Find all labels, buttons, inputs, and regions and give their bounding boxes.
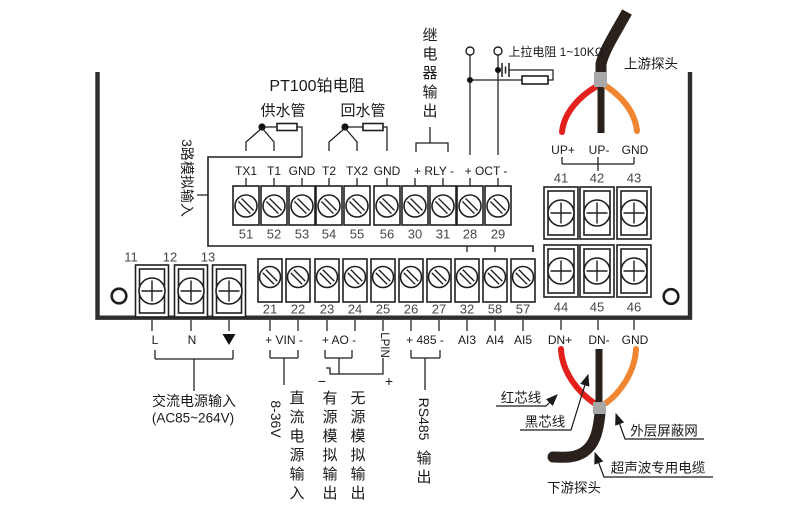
neutral-label: N [188, 334, 197, 346]
pt100-title: PT100铂电阻 [269, 79, 364, 95]
terminal-label-t1: T1 [267, 165, 281, 177]
terminal-number: 24 [348, 302, 362, 317]
active-output-caption: 有源模拟输出 [322, 389, 337, 503]
supply-pipe-label: 供水管 [260, 104, 305, 119]
terminal-number: 56 [380, 227, 394, 242]
rs485-terminal-label: + 485 - [406, 334, 444, 346]
up-bracket [562, 157, 634, 171]
black-core-label: 黑芯线 [525, 415, 566, 429]
up-gnd-label: GND [622, 144, 649, 156]
terminal-number: 32 [460, 302, 474, 317]
terminal-number: 12 [163, 250, 177, 265]
terminal-number: 27 [432, 302, 446, 317]
lpin-label: LPIN [377, 332, 389, 358]
terminal-number: 43 [627, 171, 641, 186]
dc-range-caption: 8-36V [269, 400, 283, 437]
ac-input-caption: 交流电源输入 [152, 394, 236, 408]
vin-label: + VIN - [265, 334, 303, 346]
terminal-number: 46 [627, 300, 641, 315]
terminal-label-tx1: TX1 [235, 165, 257, 177]
up-plus-label: UP+ [551, 144, 575, 156]
cable-label: 超声波专用电缆 [611, 461, 706, 475]
upstream-cable [562, 12, 637, 133]
terminal-number: 26 [404, 302, 418, 317]
terminal-number: 52 [267, 227, 281, 242]
terminal-number: 44 [554, 300, 568, 315]
return-pipe-label: 回水管 [340, 104, 385, 119]
terminal-number: 31 [436, 227, 450, 242]
oct-pullup-circuit [466, 47, 553, 155]
open-terminal-icon [466, 47, 474, 55]
terminal-number: 11 [124, 250, 138, 265]
mounting-hole-left [112, 289, 127, 304]
up-minus-label: UP- [589, 144, 610, 156]
up-red-wire [562, 86, 597, 132]
relay-bracket [416, 127, 448, 152]
dn-plus-label: DN+ [548, 334, 572, 346]
terminal-number: 57 [516, 302, 530, 317]
dn-red-wire [561, 349, 594, 403]
ai4-label: AI4 [486, 334, 504, 346]
cable-ferrule [594, 72, 607, 87]
ac-range-caption: (AC85~264V) [152, 411, 234, 425]
terminal-number: 41 [554, 171, 568, 186]
terminal-number: 45 [590, 300, 604, 315]
terminal-label-t2: T2 [322, 165, 336, 177]
terminal-number: 42 [590, 171, 604, 186]
terminal-number: 53 [295, 227, 309, 242]
terminal-number: 22 [291, 302, 305, 317]
dn-gnd-label: GND [622, 334, 649, 346]
terminal-number: 21 [263, 302, 277, 317]
resistor-symbol [277, 124, 297, 131]
rs485-caption-cjk: 输出 [416, 449, 431, 487]
passive-minus-label: − [318, 374, 326, 388]
terminal-label-oct: + OCT - [465, 165, 508, 177]
pullup-label: 上拉电阻 1~10KΩ [508, 46, 603, 58]
relay-output-label: 继电器输出 [422, 26, 437, 121]
dn-orange-wire [606, 349, 636, 403]
passive-plus-label: + [385, 374, 393, 388]
cable-ferrule [593, 402, 606, 414]
bottom-edge-ticks [152, 320, 634, 331]
terminal-number: 51 [239, 227, 253, 242]
terminal-label-rly: + RLY - [414, 165, 454, 177]
terminal-label-gnd1: GND [289, 165, 316, 177]
passive-output-caption: 无源模拟输出 [350, 389, 365, 503]
terminal-number: 29 [491, 227, 505, 242]
mounting-hole-right [664, 289, 679, 304]
terminal-number: 30 [408, 227, 422, 242]
terminal-number: 25 [376, 302, 390, 317]
terminal-label-tx2: TX2 [346, 165, 368, 177]
label-terminal-ticks [246, 178, 498, 186]
terminal-number: 23 [320, 302, 334, 317]
terminal-number: 58 [488, 302, 502, 317]
dc-input-caption: 直流电源输入 [289, 389, 304, 503]
terminal-number: 54 [322, 227, 336, 242]
ao-label: + AO - [322, 334, 356, 346]
ai5-label: AI5 [514, 334, 532, 346]
pt100-sensor-supply [246, 123, 302, 157]
downstream-cable [553, 349, 636, 457]
wiring-diagram: PT100铂电阻 供水管 回水管 3路模拟输入 继电器输出 上拉电阻 1~10K… [0, 0, 801, 515]
downstream-probe-label: 下游探头 [547, 481, 601, 495]
analog-input-label: 3路模拟输入 [180, 139, 194, 217]
resistor-symbol [363, 124, 383, 131]
line-label: L [152, 334, 159, 346]
pullup-resistor-symbol [522, 76, 548, 84]
terminal-number: 13 [201, 250, 215, 265]
power-source-icon [502, 63, 509, 77]
up-orange-wire [606, 86, 637, 131]
red-core-label: 红芯线 [501, 391, 542, 405]
ai3-label: AI3 [458, 334, 476, 346]
pt100-sensor-return [329, 123, 387, 151]
open-terminal-icon [494, 47, 502, 55]
shield-label: 外层屏蔽网 [630, 424, 698, 438]
terminal-label-gnd2: GND [374, 165, 401, 177]
terminal-number: 55 [350, 227, 364, 242]
earth-ground-icon [223, 334, 236, 345]
rs485-caption: RS485 [417, 398, 431, 441]
terminal-number: 28 [463, 227, 477, 242]
upstream-probe-label: 上游探头 [624, 57, 678, 71]
dn-minus-label: DN- [588, 334, 609, 346]
